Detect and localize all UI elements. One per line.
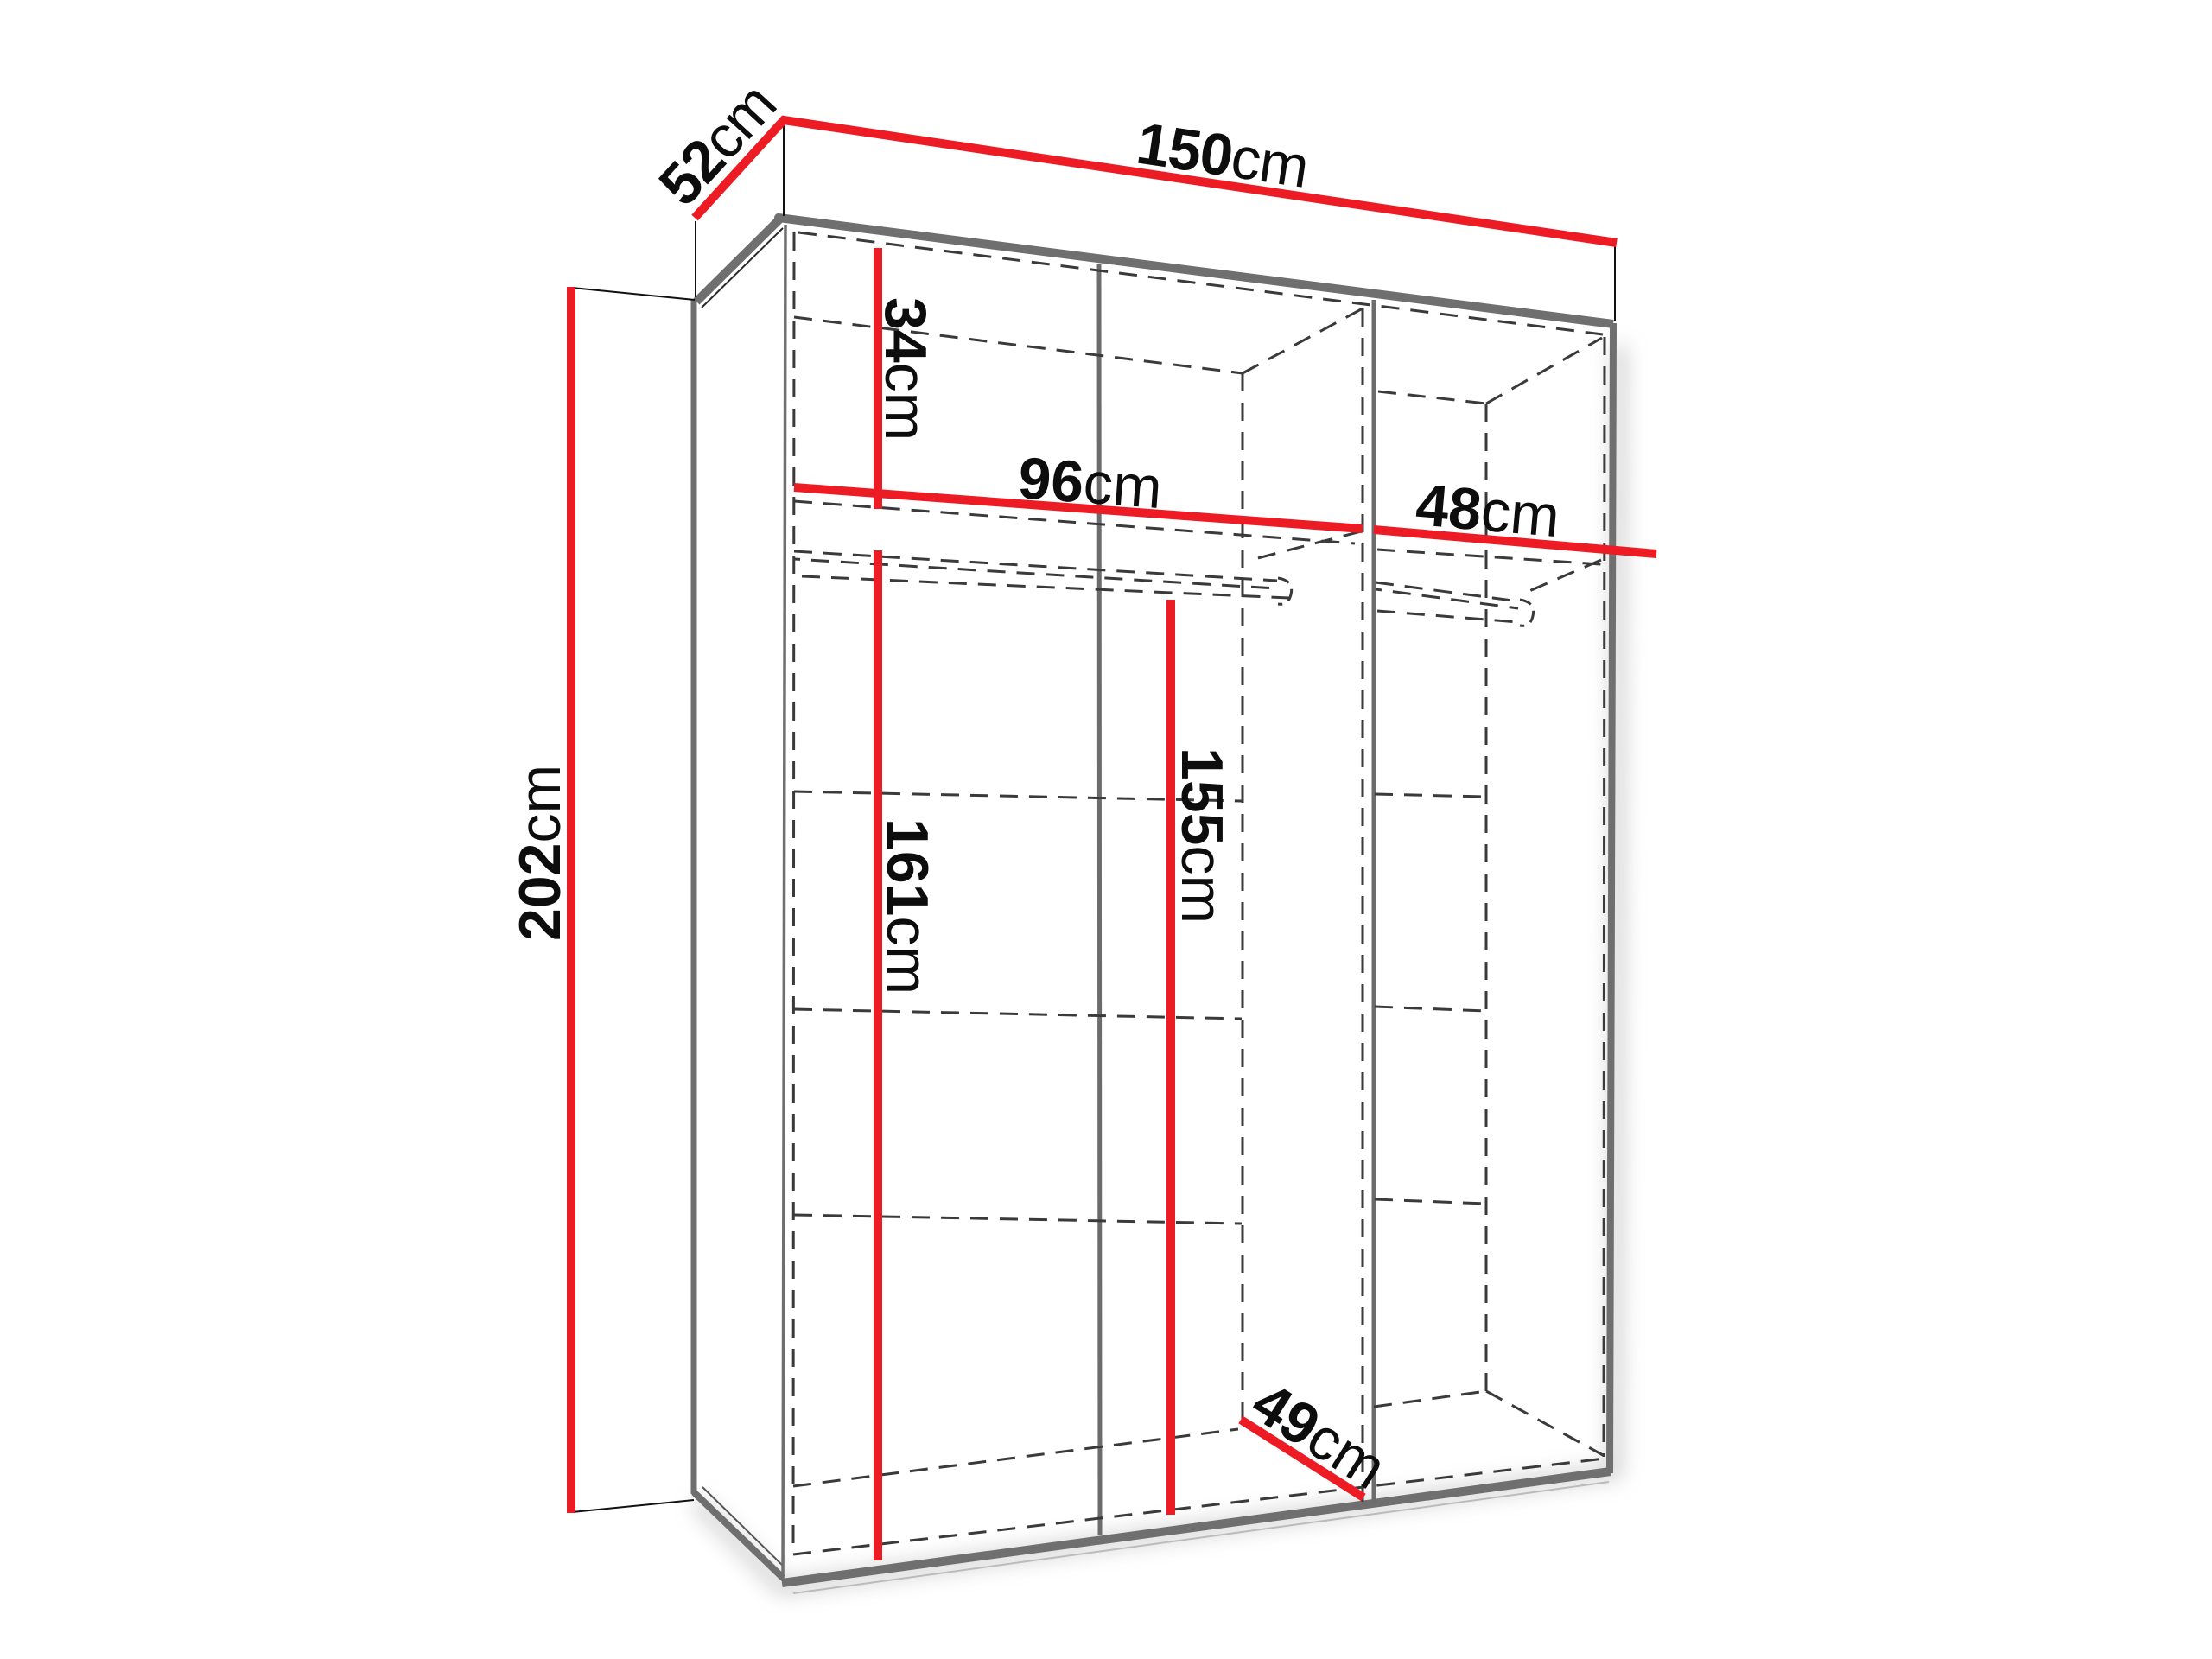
svg-text:202cm: 202cm: [507, 765, 573, 941]
svg-text:161cm: 161cm: [874, 818, 940, 995]
svg-text:48cm: 48cm: [1414, 472, 1562, 550]
svg-text:34cm: 34cm: [873, 297, 938, 441]
svg-text:96cm: 96cm: [1016, 445, 1164, 521]
svg-text:155cm: 155cm: [1169, 747, 1235, 924]
svg-text:150cm: 150cm: [1133, 111, 1313, 200]
